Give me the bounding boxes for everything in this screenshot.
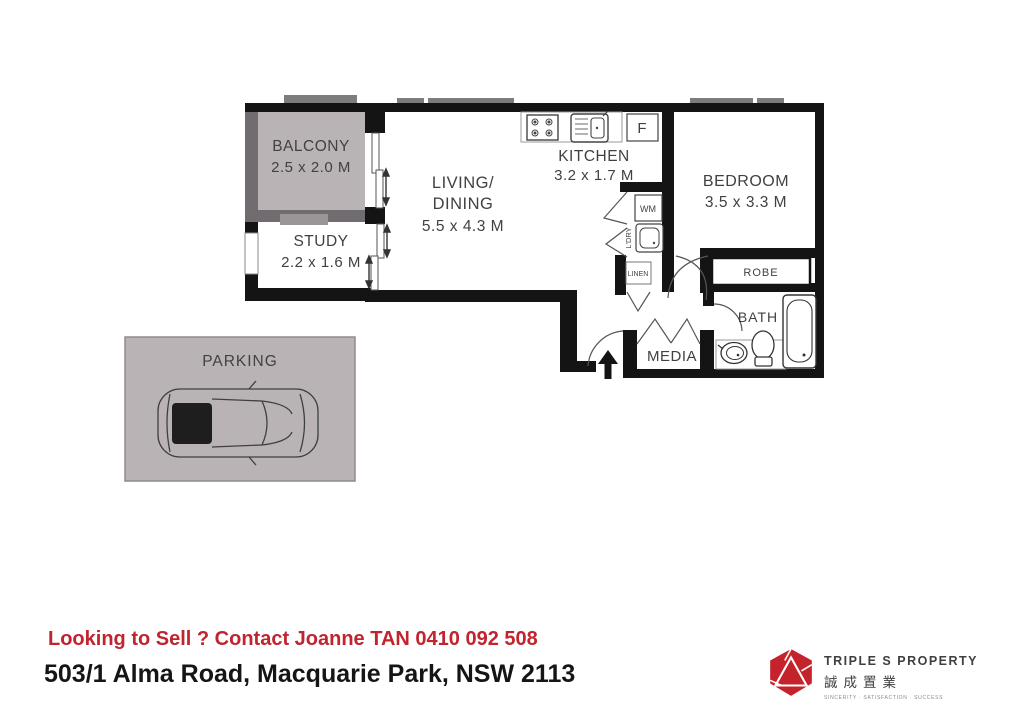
toilet-icon — [752, 331, 774, 366]
promo-text: Looking to Sell ? Contact Joanne TAN 041… — [48, 628, 538, 651]
living-label-2: DINING — [433, 195, 494, 213]
linen-label: LINEN — [628, 271, 649, 278]
laundry-label: L'DRY — [624, 227, 633, 248]
media-label: MEDIA — [647, 348, 697, 365]
linen-closet: LINEN — [626, 262, 651, 284]
laundry-tub-icon — [636, 224, 663, 252]
sink-icon — [571, 111, 608, 142]
fridge-label: F — [637, 120, 646, 137]
balcony-label: BALCONY — [272, 138, 350, 155]
laundry-fixtures: WM L'DRY — [624, 195, 663, 252]
floorplan-drawing: F WM L'DRY LINEN ROBE — [0, 0, 1024, 724]
stove-icon — [527, 115, 558, 140]
study-dims: 2.2 x 1.6 M — [281, 254, 361, 271]
parking-label: PARKING — [202, 353, 278, 370]
floorplan-page: F WM L'DRY LINEN ROBE — [0, 0, 1024, 724]
bath-fixtures — [716, 295, 816, 369]
bedroom-label: BEDROOM — [703, 173, 789, 190]
washing-machine-label: WM — [640, 204, 656, 214]
living-dims: 5.5 x 4.3 M — [422, 218, 504, 235]
logo-tagline: SINCERITY · SATISFACTION · SUCCESS — [824, 695, 978, 701]
robe-label: ROBE — [743, 267, 778, 279]
living-label-1: LIVING/ — [432, 174, 494, 192]
bedroom-dims: 3.5 x 3.3 M — [705, 194, 787, 211]
media-bifold-door — [637, 319, 671, 344]
media-bifold-door2 — [671, 319, 700, 344]
triple-s-logo-icon — [768, 648, 814, 698]
bath-label: BATH — [738, 309, 778, 325]
entry-arrow-icon — [598, 350, 618, 379]
logo-brand-name: TRIPLE S PROPERTY — [824, 654, 978, 668]
logo-chinese-name: 誠成置業 — [824, 671, 978, 691]
kitchen-dims: 3.2 x 1.7 M — [554, 167, 634, 184]
balcony-dims: 2.5 x 2.0 M — [271, 159, 351, 176]
kitchen-label: KITCHEN — [558, 148, 630, 165]
study-window — [245, 233, 258, 274]
study-label: STUDY — [293, 233, 348, 250]
fridge-icon: F — [627, 114, 658, 141]
kitchen-bench: F — [521, 111, 658, 142]
laundry-bifold-door — [604, 192, 627, 224]
robe-closet: ROBE — [712, 258, 810, 285]
bathtub-icon — [783, 295, 816, 368]
linen-door-flap — [627, 292, 650, 311]
agency-logo: TRIPLE S PROPERTY 誠成置業 SINCERITY · SATIS… — [768, 648, 978, 701]
address-text: 503/1 Alma Road, Macquarie Park, NSW 211… — [44, 660, 575, 689]
parking-space: PARKING — [125, 337, 355, 481]
